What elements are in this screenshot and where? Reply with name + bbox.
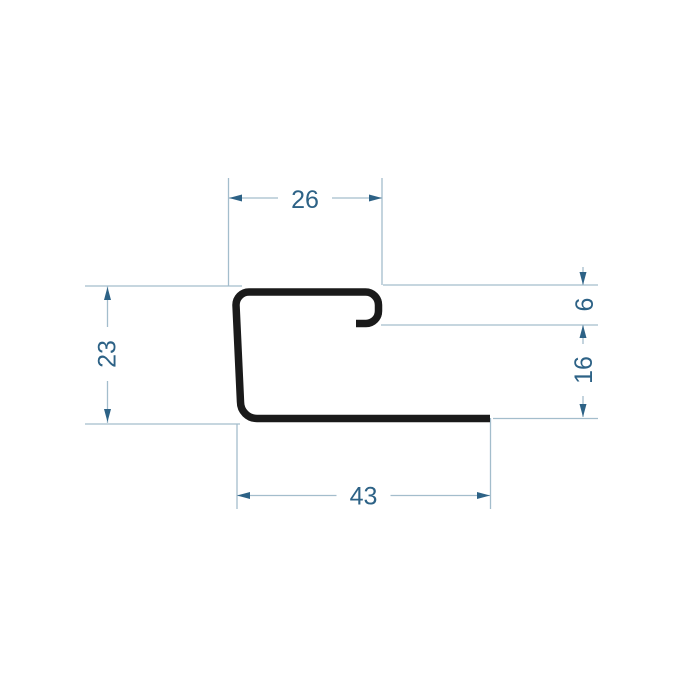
dim-value-top-width: 26	[291, 186, 319, 214]
arrow-down-icon	[580, 272, 587, 285]
dim-label-left-height: 23	[94, 327, 122, 381]
drawing-page: 26 23 6 16 43	[0, 0, 700, 700]
arrow-right-icon	[369, 195, 382, 202]
arrow-up-icon	[580, 325, 587, 338]
arrow-down-icon	[580, 404, 587, 417]
dim-label-right-offset: 16	[570, 344, 598, 396]
dim-value-left-height: 23	[94, 340, 122, 368]
dim-value-hook-return: 6	[571, 298, 599, 312]
drawing-canvas: 26 23 6 16 43	[0, 0, 700, 700]
arrow-up-icon	[104, 287, 111, 300]
profile-outline	[236, 292, 490, 419]
dim-value-right-offset: 16	[570, 356, 598, 384]
arrow-right-icon	[477, 492, 490, 499]
arrow-down-icon	[104, 409, 111, 422]
arrow-left-icon	[229, 195, 242, 202]
dimension-lines	[85, 178, 598, 509]
dimension-arrows	[104, 195, 587, 500]
dim-value-bottom-width: 43	[350, 483, 378, 511]
dim-label-bottom-width: 43	[337, 483, 391, 511]
dim-label-hook-return: 6	[571, 291, 599, 319]
dim-label-top-width: 26	[278, 186, 332, 214]
arrow-left-icon	[237, 492, 250, 499]
